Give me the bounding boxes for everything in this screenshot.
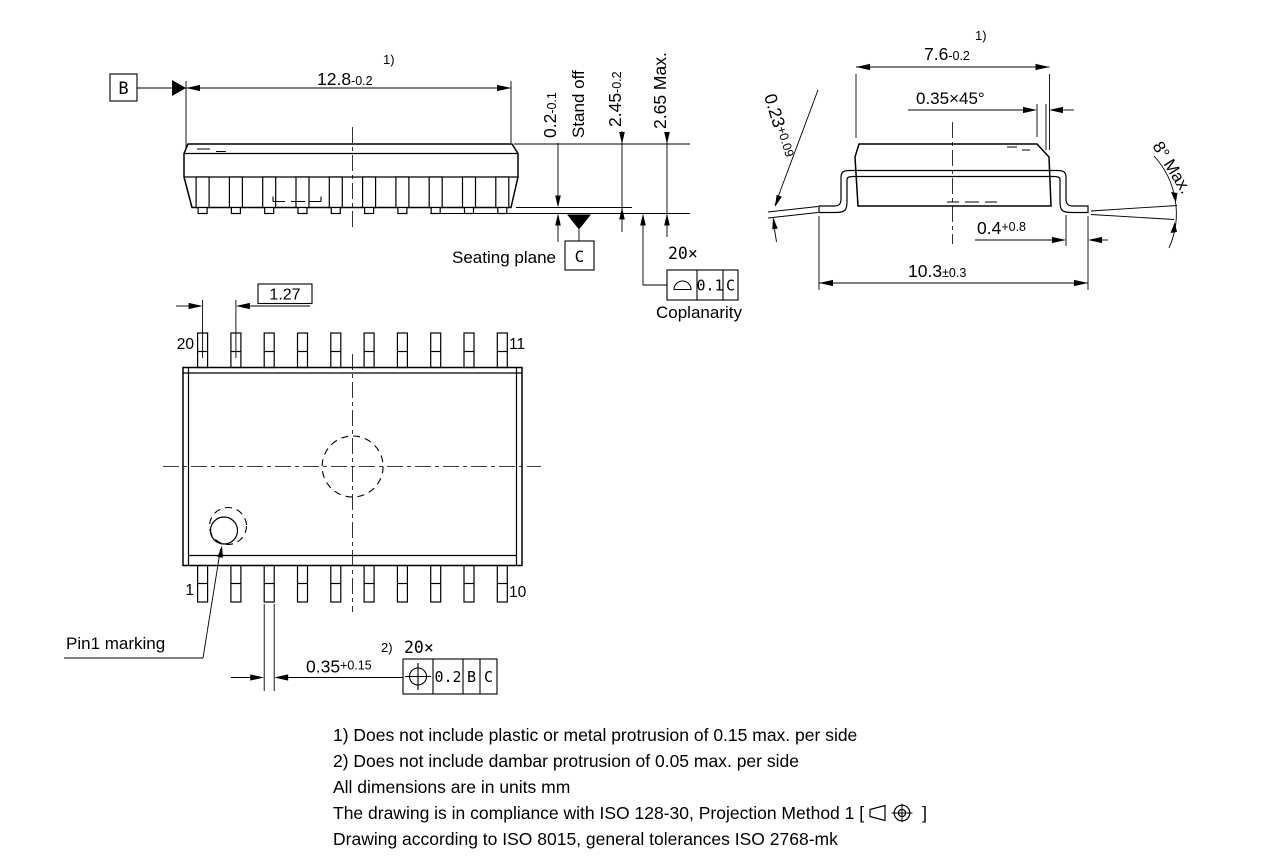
pin1-marking-dashed-circle — [210, 508, 247, 545]
position-datum-b: B — [467, 668, 476, 686]
coplanarity-label: Coplanarity — [656, 303, 742, 322]
body-length-value: 12.8-0.2 — [317, 69, 373, 89]
note-ref-2: 2) — [381, 640, 393, 655]
standoff-value: 0.2-0.1 — [540, 92, 560, 138]
chamfer-value: 0.35×45° — [916, 89, 985, 108]
note-line-4: The drawing is in compliance with ISO 12… — [333, 800, 1053, 826]
pitch-value: 1.27 — [269, 287, 300, 304]
datum-b: B — [110, 74, 186, 101]
dim-lead-angle: 8° Max. — [1091, 138, 1195, 248]
first-angle-projection-icon — [866, 803, 920, 823]
position-tol: 0.2 — [434, 668, 461, 686]
dim-body-length: 12.8-0.2 1) — [186, 52, 511, 148]
overall-height-value: 2.65 Max. — [650, 52, 670, 129]
pin-number-11: 11 — [509, 336, 525, 353]
body-width-value: 7.6-0.2 — [924, 44, 970, 64]
position-datum-c: C — [484, 668, 493, 686]
note-ref-1: 1) — [383, 52, 395, 67]
foot-length-value: 0.4+0.8 — [977, 218, 1026, 238]
notes-block: 1) Does not include plastic or metal pro… — [333, 722, 1053, 852]
surface-profile-icon — [674, 281, 691, 290]
pin1-marking-dot — [211, 517, 238, 544]
position-icon — [405, 663, 431, 690]
plan-view: 20 11 1 10 1.27 Pin1 marking — [64, 284, 541, 694]
end-view: 7.6-0.2 1) 0.35×45° 0.23+0.09 — [760, 28, 1195, 290]
seating-plane-label: Seating plane — [452, 248, 556, 267]
pin-number-1: 1 — [185, 582, 194, 599]
left-lead — [819, 171, 857, 213]
coplanarity-tol: 0.1 — [696, 277, 723, 295]
note-line-1: 1) Does not include plastic or metal pro… — [333, 722, 1053, 748]
dim-heights: 0.2-0.1 Stand off 2.45-0.2 2.65 Max. — [430, 52, 690, 242]
side-view: 12.8-0.2 1) B 0.2-0.1 Stand off 2 — [110, 52, 742, 322]
body-height-value: 2.45-0.2 — [605, 71, 625, 127]
datum-c-letter: C — [575, 247, 585, 266]
lead-angle-value: 8° Max. — [1149, 138, 1196, 197]
right-lead — [1050, 171, 1088, 213]
coplanarity-callout: 20× 0.1 C Coplanarity — [640, 214, 742, 323]
overall-span-value: 10.3±0.3 — [908, 261, 966, 281]
lead-count-label: 20× — [668, 244, 698, 263]
seating-plane: Seating plane C — [452, 215, 594, 271]
lead-count-label-2: 20× — [404, 638, 434, 657]
lead-thickness-value: 0.23+0.09 — [760, 91, 798, 160]
dim-overall-span: 10.3±0.3 — [819, 216, 1088, 290]
dim-lead-width: 0.35+0.15 2) 20× 0.2 B C — [231, 604, 497, 694]
standoff-label: Stand off — [569, 70, 588, 138]
coplanarity-datum: C — [726, 277, 735, 295]
pin1-marking-label: Pin1 marking — [66, 634, 165, 653]
dim-pitch: 1.27 — [176, 284, 312, 358]
note-ref-1b: 1) — [975, 28, 987, 43]
package-drawing-page: 12.8-0.2 1) B 0.2-0.1 Stand off 2 — [0, 0, 1280, 857]
dim-lead-thickness: 0.23+0.09 — [760, 90, 818, 242]
note-line-5: Drawing according to ISO 8015, general t… — [333, 826, 1053, 852]
note-line-3: All dimensions are in units mm — [333, 774, 1053, 800]
datum-b-letter: B — [118, 79, 128, 99]
note-line-2: 2) Does not include dambar protrusion of… — [333, 748, 1053, 774]
lead-width-value: 0.35+0.15 — [306, 657, 372, 677]
pin-number-10: 10 — [509, 584, 527, 601]
pin-number-20: 20 — [177, 336, 195, 353]
